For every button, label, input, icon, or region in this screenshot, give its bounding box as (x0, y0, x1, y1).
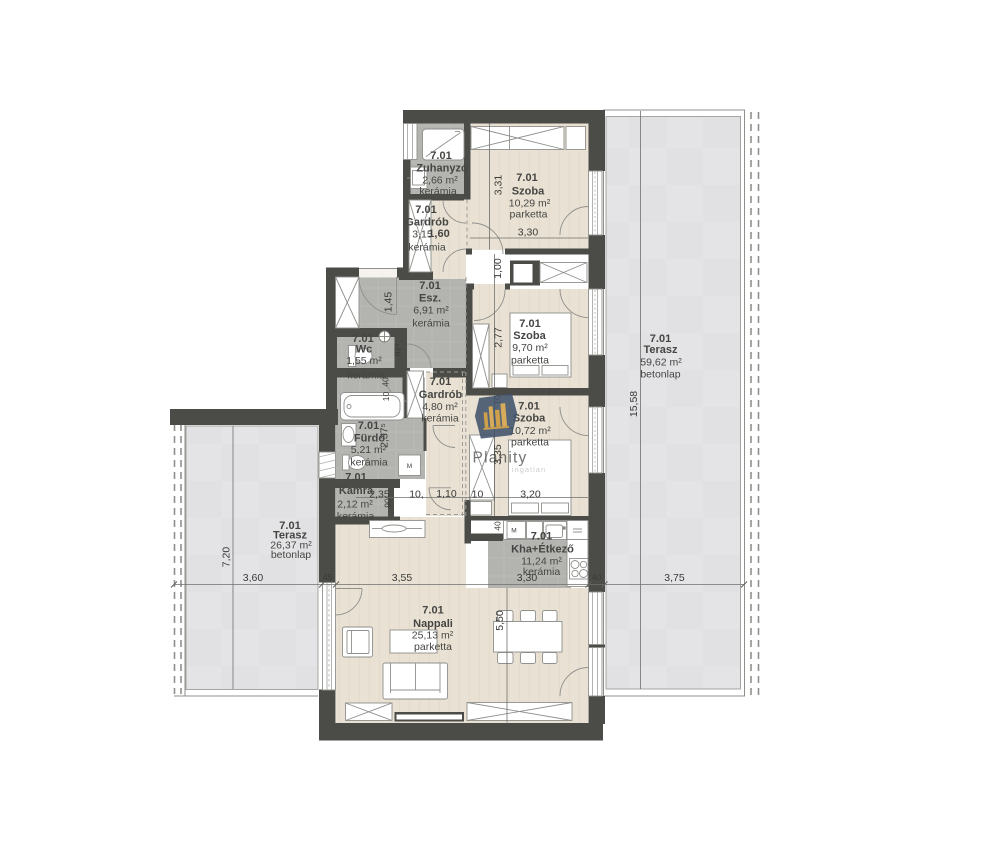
svg-text:59,62 m²: 59,62 m² (640, 357, 682, 369)
svg-text:7.01: 7.01 (345, 472, 366, 484)
svg-text:Fürdő: Fürdő (354, 433, 385, 445)
svg-text:1,45: 1,45 (383, 292, 395, 313)
svg-text:kerámia: kerámia (412, 318, 450, 330)
svg-text:Gardrób: Gardrób (405, 217, 449, 229)
svg-text:7.01: 7.01 (430, 376, 451, 388)
svg-text:7,20: 7,20 (221, 547, 233, 568)
svg-text:parketta: parketta (511, 355, 549, 367)
svg-text:7.01: 7.01 (519, 318, 540, 330)
svg-text:kerámia: kerámia (337, 511, 375, 523)
svg-text:betonlap: betonlap (271, 549, 311, 561)
svg-text:M: M (407, 463, 412, 470)
svg-text:10: 10 (472, 489, 484, 501)
svg-text:kerámia: kerámia (347, 370, 385, 382)
svg-text:kerámia: kerámia (350, 457, 388, 469)
svg-text:Kha+Étkező: Kha+Étkező (511, 543, 574, 556)
svg-text:Szoba: Szoba (512, 186, 545, 198)
svg-text:ingatlan: ingatlan (512, 465, 546, 474)
svg-text:kerámia: kerámia (523, 566, 561, 578)
svg-text:3,60: 3,60 (243, 572, 264, 584)
svg-text:7.01: 7.01 (518, 401, 539, 413)
svg-text:15,58: 15,58 (628, 391, 640, 417)
svg-text:45: 45 (323, 572, 333, 582)
svg-text:25,13 m²: 25,13 m² (412, 630, 454, 642)
svg-text:1,55 m²: 1,55 m² (346, 355, 382, 367)
svg-text:3,75: 3,75 (664, 572, 685, 584)
svg-text:2,12 m²: 2,12 m² (337, 499, 373, 511)
svg-text:Esz.: Esz. (419, 293, 441, 305)
svg-text:90: 90 (383, 498, 393, 508)
svg-text:1,60: 1,60 (428, 228, 449, 240)
svg-text:7.01: 7.01 (531, 531, 552, 543)
svg-text:7.01: 7.01 (419, 280, 440, 292)
svg-text:Wc: Wc (356, 344, 373, 356)
svg-text:parketta: parketta (414, 641, 452, 653)
svg-text:Kamra: Kamra (339, 485, 374, 497)
svg-text:9,70 m²: 9,70 m² (512, 342, 548, 354)
svg-text:parketta: parketta (510, 209, 548, 221)
svg-text:3,55: 3,55 (392, 572, 413, 584)
svg-text:10,: 10, (409, 489, 424, 501)
svg-text:betonlap: betonlap (640, 369, 680, 381)
svg-text:Terasz: Terasz (643, 344, 678, 356)
svg-text:Szoba: Szoba (513, 413, 546, 425)
svg-text:Planity: Planity (473, 450, 528, 467)
svg-text:7.01: 7.01 (430, 150, 451, 162)
svg-text:Gardrób: Gardrób (419, 389, 463, 401)
svg-text:parketta: parketta (511, 437, 549, 449)
svg-text:kerámia: kerámia (408, 242, 446, 254)
svg-text:40: 40 (493, 521, 503, 531)
svg-text:Szoba: Szoba (513, 330, 546, 342)
svg-text:40: 40 (592, 572, 602, 582)
svg-text:5,50: 5,50 (494, 610, 506, 631)
svg-text:kerámia: kerámia (419, 186, 457, 198)
svg-text:kerámia: kerámia (421, 413, 459, 425)
svg-text:7.01: 7.01 (516, 172, 537, 184)
svg-text:7.01: 7.01 (358, 420, 379, 432)
svg-text:3,20: 3,20 (520, 489, 541, 501)
svg-text:97⁵: 97⁵ (393, 344, 403, 357)
svg-text:7.01: 7.01 (422, 605, 443, 617)
svg-text:10: 10 (381, 392, 391, 402)
svg-text:3,31: 3,31 (493, 175, 505, 196)
svg-text:6,91 m²: 6,91 m² (413, 305, 449, 317)
svg-text:7.01: 7.01 (415, 204, 436, 216)
svg-text:M: M (511, 528, 516, 535)
svg-text:Nappali: Nappali (413, 618, 453, 630)
svg-text:3,30: 3,30 (518, 227, 539, 239)
svg-text:2,77: 2,77 (493, 327, 505, 348)
svg-text:1,00: 1,00 (492, 258, 504, 279)
svg-text:1,10: 1,10 (436, 488, 457, 500)
svg-text:Zuhanyzó: Zuhanyzó (416, 163, 468, 175)
svg-text:10,72 m²: 10,72 m² (509, 425, 551, 437)
svg-text:5,21 m²: 5,21 m² (351, 444, 387, 456)
svg-text:4,80 m²: 4,80 m² (422, 401, 458, 413)
